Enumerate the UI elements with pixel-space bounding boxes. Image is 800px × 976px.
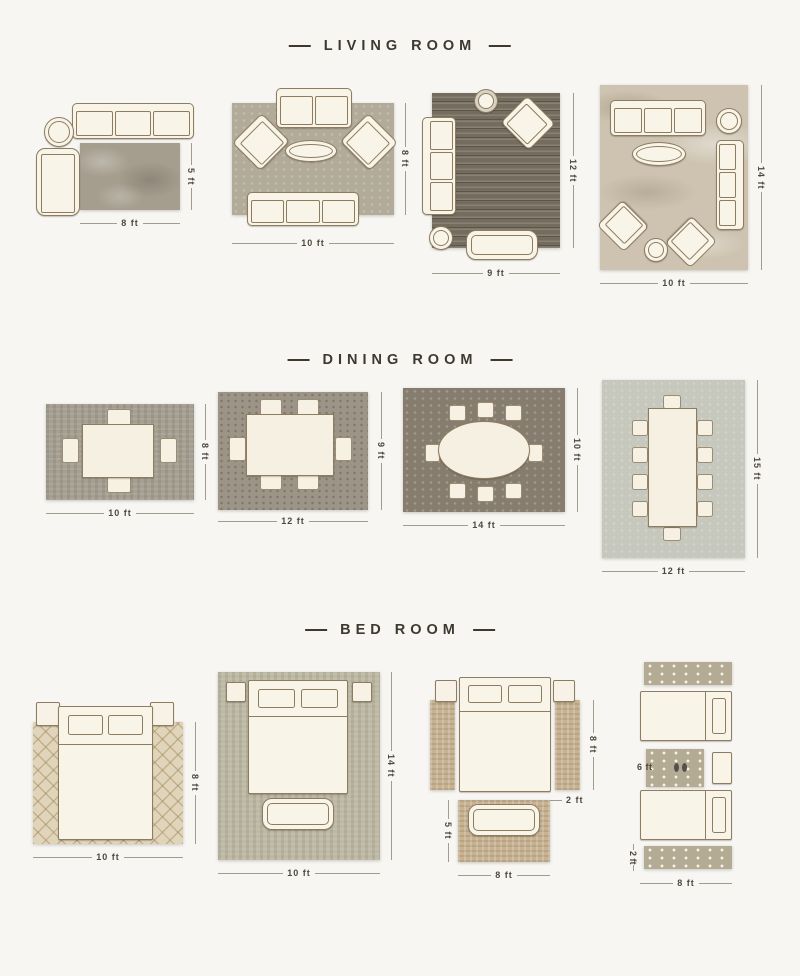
dimension-line [573,93,574,156]
dimension-line [205,464,206,500]
dimension-line [757,380,758,454]
dining-chair-icon [107,476,131,493]
nightstand-icon [553,680,575,702]
section-title-label: BED ROOM [340,622,460,638]
dimension-line [191,188,192,210]
dimension-width-label: 10 ft [662,278,686,288]
cushion [433,230,449,246]
dimension-line [432,273,483,274]
sofa-icon [716,140,744,230]
cushion [644,108,672,133]
sofa-icon [276,88,352,128]
dimension-width-label: 10 ft [287,868,311,878]
dining-chair-icon [697,501,713,517]
coffee-table-icon [632,142,686,166]
nightstand-icon [36,702,60,726]
dining-chair-icon [632,420,648,436]
sofa-icon [72,103,194,139]
runner-rug [644,662,732,685]
dimension-width-label: 12 ft [281,516,305,526]
dimension-line [381,392,382,439]
pillow-icon [68,715,102,735]
dimension-width-label: 9 ft [487,268,505,278]
cushion [153,111,190,136]
dining-chair-icon [632,474,648,490]
ottoman-icon [716,108,742,134]
dimension-line [699,883,732,884]
dimension-line [329,243,394,244]
dining-chair-icon [477,486,494,502]
cushion [719,144,736,170]
section-title-label: DINING ROOM [323,352,478,368]
cushion [322,200,355,223]
cushion [719,172,736,198]
height-dimension: 12 ft [568,93,578,248]
dimension-height-label: 5 ft [443,822,453,840]
dining-table-icon [648,408,697,527]
bench-icon [466,230,538,260]
dimension-height-label: 8 ft [400,150,410,168]
side-table-icon [474,89,498,113]
nightstand-icon [435,680,457,702]
dining-chair-icon [229,437,246,461]
dimension-height-label: 8 ft [588,736,598,754]
cushion [286,200,319,223]
cushion [48,121,70,143]
dimension-line [757,484,758,558]
dimension-line [403,525,468,526]
dining-chair-icon [663,395,681,409]
chaise-chair-icon [36,148,80,216]
dining-table-icon [438,421,530,479]
height-dimension: 14 ft [756,85,766,270]
title-dash [489,45,511,47]
dining-chair-icon [335,437,352,461]
table-top [636,146,682,162]
cushion [720,112,738,130]
width-dimension: 10 ft [46,508,194,518]
bed-icon [640,691,732,741]
width-dimension: 10 ft [600,278,748,288]
dining-chair-icon [632,447,648,463]
nightstand-icon [226,682,246,702]
cushion [280,96,313,125]
title-dash [289,45,311,47]
pillow-icon [712,698,726,734]
dimension-line [761,192,762,270]
dimension-height-label: 12 ft [568,159,578,183]
title-dash [490,359,512,361]
cushion [267,803,329,825]
dimension-width-label: 12 ft [662,566,686,576]
dining-table-icon [82,424,154,478]
dining-table-icon [246,414,334,476]
width-dimension: 12 ft [602,566,745,576]
height-dimension: 5 ft [186,143,196,210]
dimension-line [448,800,449,819]
dimension-line [577,388,578,435]
dimension-line [315,873,380,874]
dining-chair-icon [697,420,713,436]
runner-rug [555,700,580,790]
bed-icon [640,790,732,840]
dining-chair-icon [477,402,494,418]
cushion [471,235,533,255]
dimension-line [593,700,594,733]
dining-chair-icon [160,438,177,463]
dimension-line [391,781,392,860]
width-dimension: 8 ft [80,218,180,228]
dimension-height-label: 2 ft [628,851,638,865]
height-dimension: 8 ft [200,404,210,500]
blanket-line [705,791,706,839]
dimension-width-label: 8 ft [121,218,139,228]
dimension-line [195,722,196,771]
dimension-line [517,875,550,876]
slipper-icon [682,763,687,772]
dining-chair-icon [505,405,522,421]
title-dash [305,629,327,631]
width-dimension: 10 ft [232,238,394,248]
dimension-line [405,103,406,147]
dimension-line [80,223,117,224]
ottoman-icon [429,226,453,250]
slipper-icon [674,763,679,772]
rug [80,143,180,210]
pillow-icon [108,715,142,735]
foot-rug-width-dimension: 8 ft [458,870,550,880]
pillow-icon [258,689,295,708]
width-dimension: 14 ft [403,520,565,530]
height-dimension: 9 ft [376,392,386,510]
dimension-line [600,283,658,284]
width-dimension: 10 ft [33,852,183,862]
cushion [719,200,736,226]
cushion [614,108,642,133]
cushion [251,200,284,223]
height-dimension: 8 ft [190,722,200,844]
dimension-line [46,513,104,514]
dimension-line [33,857,92,858]
cushion [115,111,152,136]
dimension-height-label: 10 ft [572,438,582,462]
dimension-line [509,273,560,274]
dining-chair-icon [697,474,713,490]
dining-chair-icon [697,447,713,463]
dimension-line [143,223,180,224]
dimension-width-label: 2 ft [566,795,584,805]
dimension-height-label: 8 ft [190,774,200,792]
dimension-line [191,143,192,165]
cushion [430,121,453,150]
coffee-table-icon [285,140,337,162]
dimension-line [136,513,194,514]
section-title-dining-room: DINING ROOM [288,352,513,368]
dimension-line [458,875,491,876]
dimension-height-label: 15 ft [752,457,762,481]
dining-chair-icon [62,438,79,463]
dimension-line [690,283,748,284]
cushion [473,809,535,831]
pillow-icon [508,685,542,703]
foot-rug-height-dimension: 5 ft [443,800,453,862]
runner-rug [644,846,732,869]
dining-chair-icon [505,483,522,499]
dimension-line [391,672,392,751]
dimension-line [218,521,277,522]
dimension-line [593,757,594,790]
bench-icon [468,804,540,836]
dimension-width-label: 10 ft [108,508,132,518]
dimension-line [602,571,658,572]
pillow-icon [301,689,338,708]
ottoman-icon [644,238,668,262]
sofa-icon [422,117,456,215]
width-dimension: 9 ft [432,268,560,278]
dimension-line [573,185,574,248]
dimension-line [309,521,368,522]
dimension-line [577,465,578,512]
dimension-width-label: 14 ft [472,520,496,530]
dimension-line [640,883,673,884]
blanket-line [59,744,152,745]
dining-chair-icon [663,527,681,541]
dining-chair-icon [449,405,466,421]
nightstand-icon [150,702,174,726]
bench-icon [262,798,334,830]
width-dimension: 12 ft [218,516,368,526]
dimension-height-label: 8 ft [200,443,210,461]
height-dimension: 14 ft [386,672,396,860]
bed-height-dimension: 8 ft [588,700,598,790]
dining-chair-icon [528,444,543,462]
height-dimension: 15 ft [752,380,762,558]
cushion [315,96,348,125]
dimension-line [381,463,382,510]
cushion [674,108,702,133]
pillow-icon [468,685,502,703]
pillow-icon [712,797,726,833]
sofa-icon [247,192,359,226]
section-title-bed-room: BED ROOM [305,622,495,638]
title-dash [473,629,495,631]
blanket-line [705,692,706,740]
dimension-line [218,873,283,874]
dimension-line [448,843,449,862]
cushion [76,111,113,136]
dimension-width-label: 10 ft [301,238,325,248]
dimension-line [205,404,206,440]
nightstand-icon [352,682,372,702]
blanket-line [460,711,550,712]
ottoman-icon [44,117,74,147]
dimension-line [689,571,745,572]
cushion [41,154,75,213]
section-title-living-room: LIVING ROOM [289,38,511,54]
cushion [430,152,453,181]
dimension-line [550,800,562,801]
section-title-label: LIVING ROOM [324,38,476,54]
dimension-line [405,171,406,215]
cushion [430,182,453,211]
runner-height-dimension: 2 ft [628,844,638,871]
cushion [648,242,664,258]
dimension-height-label: 5 ft [186,168,196,186]
dimension-line [761,85,762,163]
table-top [478,93,494,109]
dimension-height-label: 14 ft [386,754,396,778]
width-dimension: 10 ft [218,868,380,878]
bed-icon [58,706,153,840]
dimension-line [500,525,565,526]
small-rug-length-label: 6 ft [637,762,653,772]
height-dimension: 8 ft [400,103,410,215]
dimension-width-label: 10 ft [96,852,120,862]
dining-chair-icon [632,501,648,517]
small-rug [646,749,704,787]
rug-size-guide: LIVING ROOM 8 ft 5 ft 10 ft 8 ft 9 ft [0,0,800,976]
dimension-line [633,865,634,871]
width-dimension: 8 ft [640,878,732,888]
dimension-height-label: 14 ft [756,166,766,190]
dimension-line [633,844,634,850]
bed-icon [248,680,348,794]
table-top [289,144,333,158]
height-dimension: 10 ft [572,388,582,512]
sofa-icon [610,100,706,136]
bed-icon [459,677,551,792]
runner-rug [430,700,455,790]
dimension-width-label: 8 ft [495,870,513,880]
dimension-height-label: 9 ft [376,442,386,460]
blanket-line [249,716,347,717]
dimension-line [124,857,183,858]
runner-width-dimension: 2 ft [550,795,592,805]
nightstand-icon [712,752,732,784]
dimension-line [195,795,196,844]
title-dash [288,359,310,361]
dimension-width-label: 8 ft [677,878,695,888]
dining-chair-icon [449,483,466,499]
dimension-line [232,243,297,244]
